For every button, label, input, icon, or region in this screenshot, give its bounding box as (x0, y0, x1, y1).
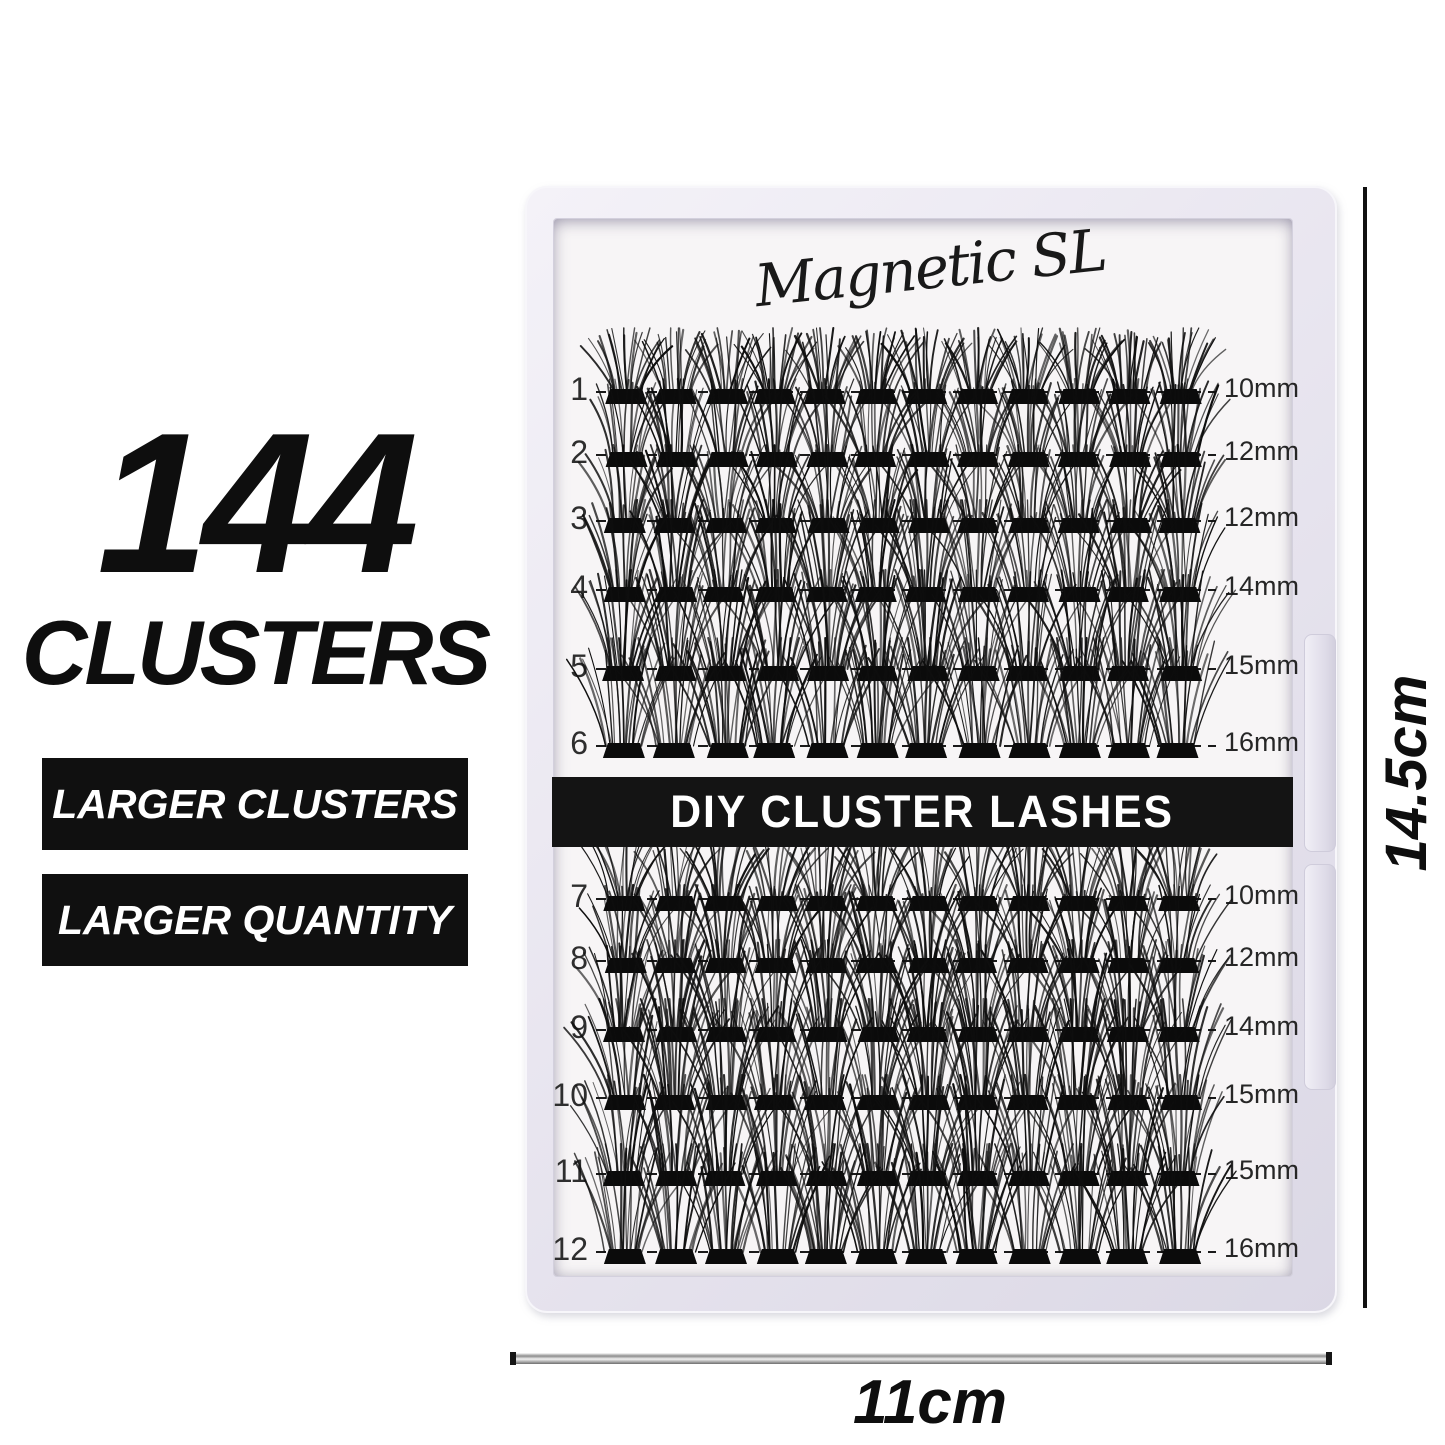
row-length-label: 12mm (1224, 944, 1314, 971)
row-length-label: 15mm (1224, 652, 1314, 679)
cluster-count: 144 (25, 404, 485, 604)
row-length-label: 14mm (1224, 573, 1314, 600)
badge-label: LARGER QUANTITY (58, 897, 452, 944)
row-number: 6 (536, 727, 588, 759)
row-length-label: 10mm (1224, 375, 1314, 402)
row-number: 5 (536, 650, 588, 682)
row-length-label: 14mm (1224, 1013, 1314, 1040)
banner: DIY CLUSTER LASHES (552, 777, 1293, 847)
row-length-label: 16mm (1224, 729, 1314, 756)
row-length-label: 15mm (1224, 1081, 1314, 1108)
row-number: 7 (536, 880, 588, 912)
lash-row (585, 636, 1230, 762)
row-length-label: 10mm (1224, 882, 1314, 909)
row-number: 9 (536, 1011, 588, 1043)
row-length-label: 12mm (1224, 504, 1314, 531)
width-dimension-line (512, 1353, 1330, 1364)
product-image: 144 CLUSTERS LARGER CLUSTERS LARGER QUAN… (0, 0, 1445, 1445)
cluster-count-label: CLUSTERS (18, 608, 492, 699)
banner-label: DIY CLUSTER LASHES (671, 786, 1175, 838)
height-dimension-line (1363, 187, 1367, 1308)
row-length-label: 15mm (1224, 1157, 1314, 1184)
row-number: 8 (536, 942, 588, 974)
badge-label: LARGER CLUSTERS (52, 781, 457, 828)
row-number: 3 (536, 502, 588, 534)
badge-larger-clusters: LARGER CLUSTERS (42, 758, 468, 850)
row-length-label: 16mm (1224, 1235, 1314, 1262)
row-number: 4 (536, 571, 588, 603)
row-number: 12 (536, 1233, 588, 1265)
lash-row (585, 1142, 1230, 1268)
row-length-label: 12mm (1224, 438, 1314, 465)
height-dimension-label: 14.5cm (1371, 623, 1441, 923)
badge-larger-quantity: LARGER QUANTITY (42, 874, 468, 966)
width-dimension-label: 11cm (780, 1372, 1080, 1434)
row-number: 1 (536, 373, 588, 405)
